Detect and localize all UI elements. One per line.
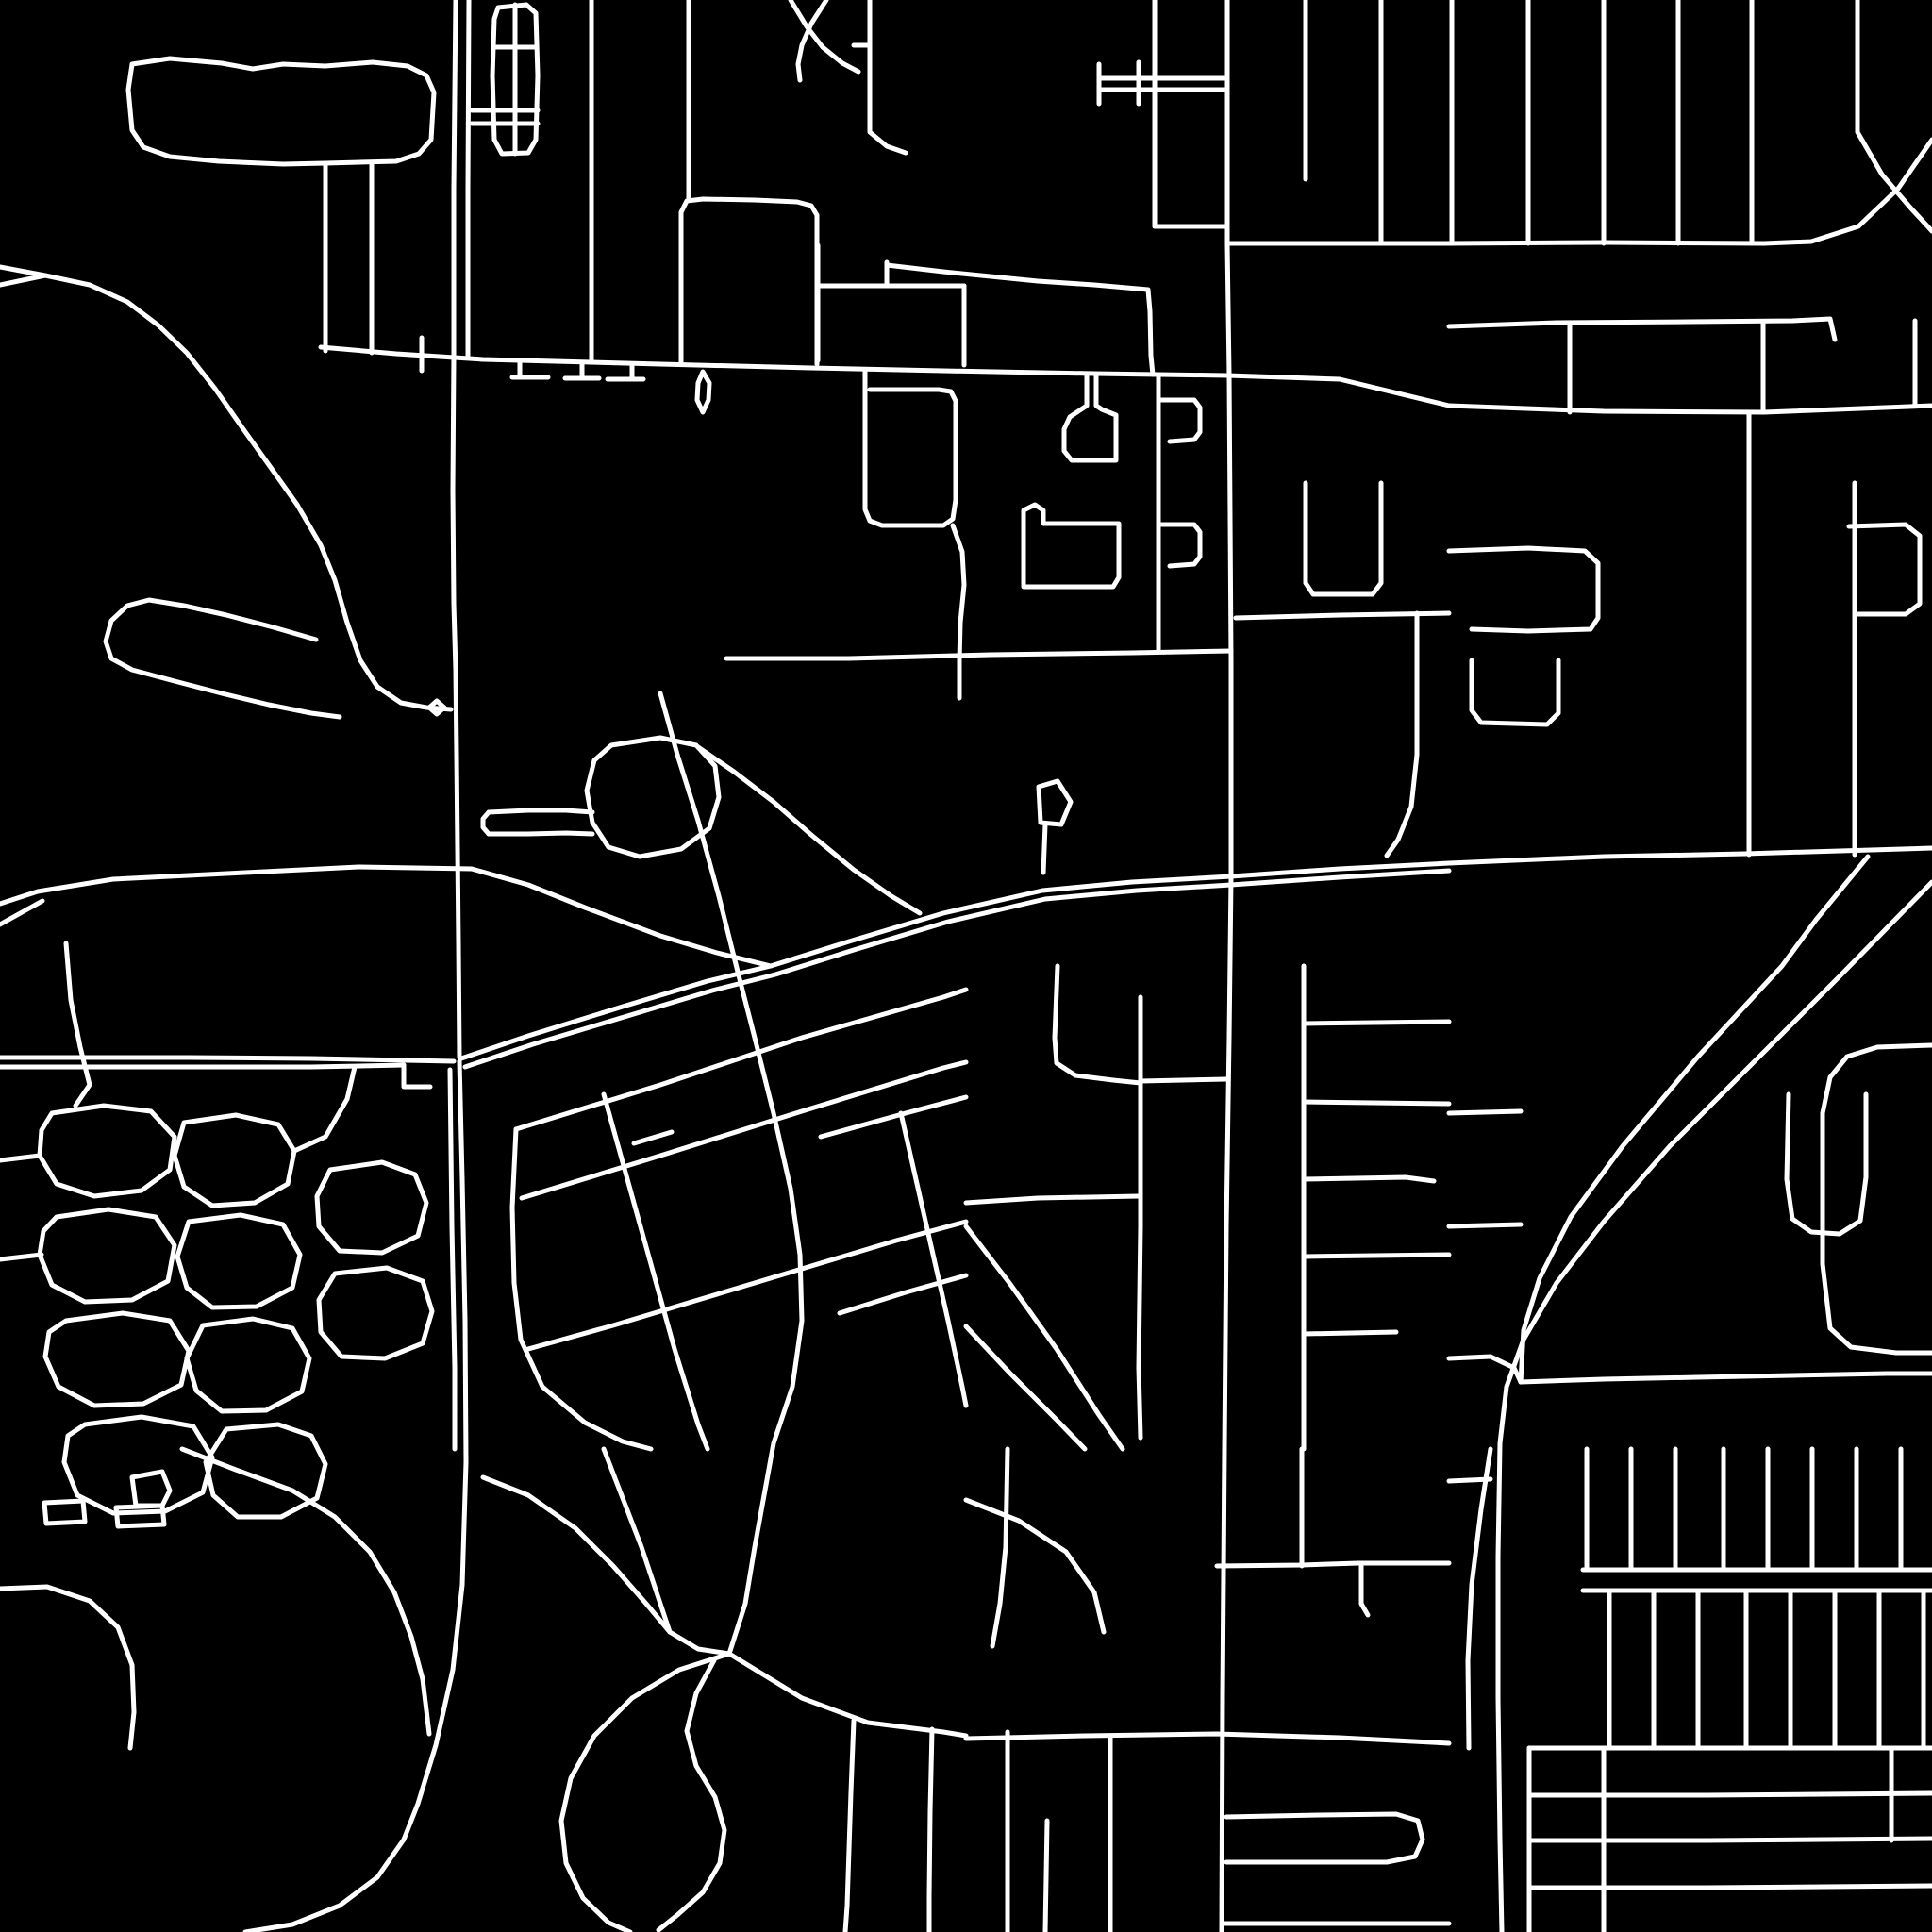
road-x-ne-a — [1857, 0, 1932, 231]
road-x1068-top — [992, 1449, 1008, 1646]
road-vert-1219 — [1148, 290, 1153, 375]
road-pent-sw — [132, 1472, 170, 1506]
road-inner-s — [658, 1660, 724, 1930]
road-vert-1109 — [1045, 1821, 1047, 1932]
road-blob-b10 — [319, 1268, 432, 1358]
road-arc-193 — [182, 1449, 429, 1734]
road-rung-1168 — [1304, 1102, 1449, 1104]
road-vert-1502 — [1387, 613, 1417, 856]
road-rect-sw2 — [116, 1506, 164, 1526]
road-ridge-fork — [0, 901, 42, 924]
road-pentagon-tail — [1043, 824, 1045, 873]
road-west-fork-b — [0, 275, 45, 285]
road-rung-1250 — [1304, 1177, 1434, 1181]
road-grid-stub — [634, 1132, 672, 1143]
road-blob-link-up — [294, 1067, 355, 1151]
road-blob-b8 — [206, 1424, 325, 1517]
road-u-inner — [1787, 1094, 1866, 1234]
road-divided-w-b — [0, 1065, 404, 1067]
road-lens-745 — [697, 372, 709, 412]
road-capsule-1925 — [1226, 1814, 1423, 1862]
road-blob-link-l1 — [0, 1156, 40, 1160]
road-hook-1443 — [1361, 1566, 1368, 1615]
road-main-ns-483a — [454, 0, 456, 356]
road-hook-1121 — [1055, 966, 1141, 1083]
road-row-1903 — [1529, 1793, 1932, 1795]
road-u-outer — [1823, 1045, 1932, 1353]
road-block-s — [865, 370, 956, 525]
road-blob-b4 — [177, 1215, 300, 1307]
road-div-stub-cap — [483, 812, 489, 834]
road-vert-1209 — [1139, 997, 1141, 1438]
road-rung-1085 — [1304, 1022, 1449, 1024]
road-hang-988 — [929, 1729, 932, 1932]
road-grid-t1 — [516, 990, 966, 1129]
map-canvas[interactable] — [0, 0, 1932, 1932]
road-pentagon-1100 — [1039, 781, 1071, 824]
road-x-ne-b — [1764, 140, 1932, 243]
road-h-1659 — [1217, 1563, 1449, 1566]
road-rect-sw1 — [44, 1501, 85, 1524]
road-hook-1228a — [1160, 400, 1200, 441]
road-block-722 — [681, 199, 817, 364]
road-blob-b9 — [317, 1162, 426, 1253]
road-sw-exit — [245, 1840, 404, 1932]
road-vert-922 — [870, 0, 906, 153]
road-loop-band — [106, 600, 340, 717]
road-h-695 — [726, 651, 1231, 658]
road-blob-loop-nw — [128, 58, 434, 164]
road-curvy-1560 — [1468, 1449, 1491, 1748]
road-stub-1570 — [1449, 1479, 1491, 1481]
road-steep-main — [660, 693, 802, 1654]
road-row-1951 — [1529, 1839, 1932, 1840]
road-hook-e3 — [1849, 525, 1920, 614]
road-ublock-1384 — [1306, 483, 1381, 594]
road-rung-1146 — [1141, 1079, 1226, 1081]
road-div-stub-a — [489, 810, 592, 812]
road-blob-b7 — [64, 1417, 212, 1513]
road-s-tail — [953, 525, 964, 698]
road-west-fork-a — [0, 267, 45, 275]
road-main-ns-483-low-twin — [450, 1070, 455, 1449]
road-map-svg — [0, 0, 1932, 1932]
road-vert-75 — [66, 943, 90, 1106]
road-oct-ne-diag — [698, 747, 920, 913]
road-artery-ne-a — [461, 848, 1932, 1058]
road-main-ns-483-mid — [453, 356, 459, 1058]
road-diag-ll-2 — [966, 1326, 1085, 1449]
road-divided-w-a — [0, 1058, 454, 1061]
road-blob-b1 — [40, 1106, 175, 1196]
road-grid-t2 — [522, 1062, 966, 1198]
road-apex-road-w — [483, 1477, 729, 1654]
road-main-ns-1301 — [1222, 0, 1231, 1932]
road-funnel-1152 — [1064, 375, 1116, 460]
road-h-258 — [1227, 242, 1764, 243]
road-rung-1332 — [1304, 1255, 1449, 1257]
road-h-1268 — [966, 1196, 1139, 1203]
road-grid-bound — [512, 1129, 651, 1449]
road-hook-1228b — [1158, 525, 1200, 566]
road-boundary-se — [729, 1654, 966, 1736]
road-rect-notch — [1024, 505, 1119, 587]
road-grid-t3 — [528, 1222, 966, 1349]
road-div-stub-b — [489, 833, 592, 834]
road-diag-ll-1 — [966, 1226, 1123, 1449]
road-wavy-343 — [1449, 319, 1835, 340]
road-divided-stub-l — [404, 1065, 430, 1087]
road-curve-l-1684 — [0, 1587, 134, 1748]
road-ridge-road — [0, 867, 771, 966]
road-rung-1414 — [1304, 1332, 1396, 1334]
road-curve-1024-1590 — [966, 1500, 1104, 1632]
road-apex-extra — [604, 1449, 670, 1632]
road-octagon — [587, 738, 719, 857]
road-stub-1180 — [1449, 1111, 1521, 1113]
road-hang-905 — [845, 1721, 854, 1932]
road-hook-e2 — [1472, 660, 1558, 724]
road-h-1840 — [966, 1734, 1449, 1743]
road-x-curve-b — [798, 0, 826, 80]
road-blob-b5 — [45, 1313, 189, 1406]
road-main-ew-upper — [321, 347, 1932, 412]
road-blob-b6 — [187, 1319, 309, 1411]
road-row-2001 — [1529, 1886, 1932, 1888]
road-grid-i — [901, 1113, 966, 1406]
road-hook-e1 — [1449, 548, 1598, 631]
road-blob-link-l2 — [0, 1255, 42, 1259]
road-main-ns-483b — [468, 0, 469, 356]
road-stub-1300 — [1449, 1224, 1521, 1226]
road-blob-b3 — [40, 1209, 175, 1302]
road-main-ns-483-low — [404, 1061, 466, 1840]
road-blob-b2 — [175, 1115, 294, 1206]
road-grid-g — [821, 1097, 966, 1137]
road-h-1465 — [1521, 1374, 1932, 1382]
